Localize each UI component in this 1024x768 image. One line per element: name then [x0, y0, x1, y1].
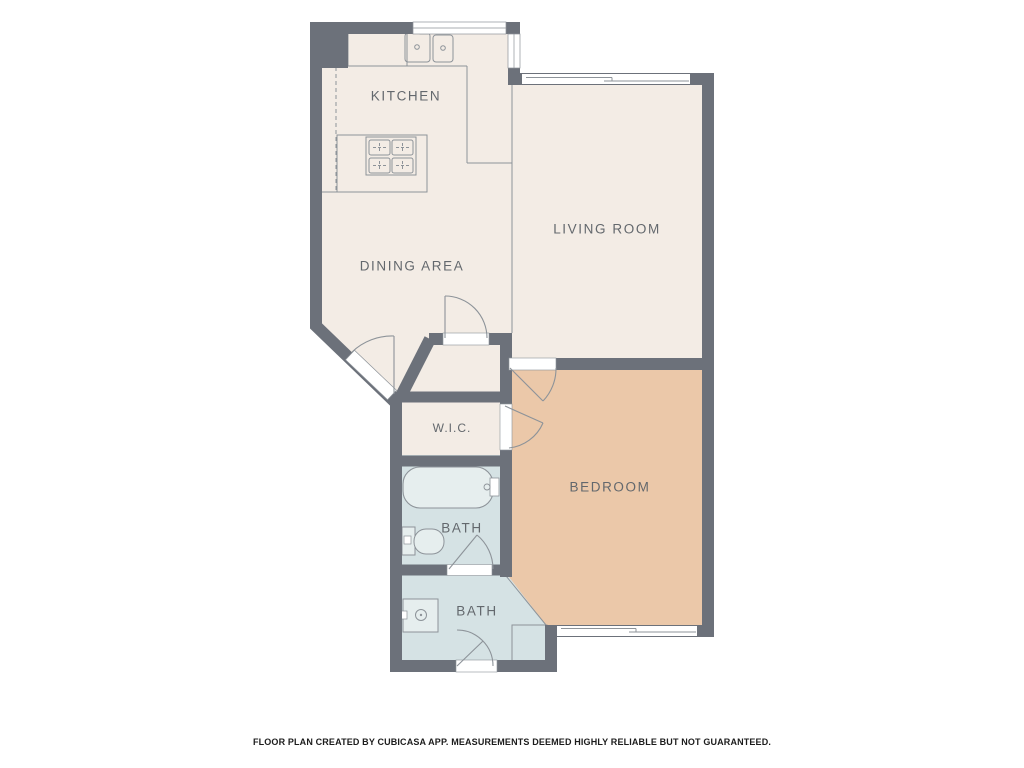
room-label-wic: W.I.C.: [433, 421, 472, 435]
room-label-bedroom: BEDROOM: [570, 480, 651, 495]
bath-upper-door-gap: [447, 565, 492, 576]
living-room-sliding-window: [522, 74, 690, 84]
kitchen-top-window: [413, 22, 506, 34]
toilet-icon: [402, 527, 444, 555]
room-label-living-room: LIVING ROOM: [553, 222, 661, 237]
corner-wall-block: [310, 22, 348, 68]
stove-icon: [366, 137, 416, 175]
floor-plan-page: KITCHEN DINING AREA LIVING ROOM W.I.C. B…: [0, 0, 1024, 768]
floor-bedroom: [500, 358, 714, 637]
bedroom-sliding-window: [557, 626, 697, 636]
room-label-kitchen: KITCHEN: [371, 89, 441, 104]
room-label-bath-upper: BATH: [441, 521, 482, 536]
footer-disclaimer: FLOOR PLAN CREATED BY CUBICASA APP. MEAS…: [253, 737, 771, 747]
wic-door-gap: [500, 404, 512, 450]
vanity-sink-icon: [400, 599, 438, 632]
floor-plan-canvas: [0, 0, 1024, 768]
kitchen-side-window: [508, 34, 520, 68]
hall-dining-door-gap: [443, 333, 489, 345]
room-label-bath-lower: BATH: [456, 604, 497, 619]
bathtub-icon: [403, 467, 499, 508]
bedroom-door-gap: [509, 358, 556, 370]
room-label-dining-area: DINING AREA: [360, 259, 465, 274]
